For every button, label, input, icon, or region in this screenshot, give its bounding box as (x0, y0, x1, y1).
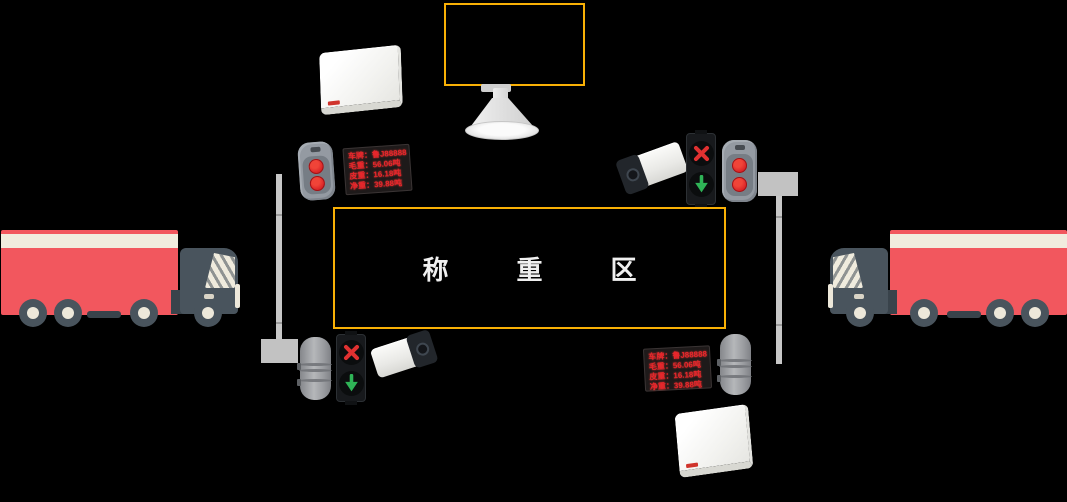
rfid-antenna-top-left (319, 45, 403, 116)
lpr-camera-bottom-left (370, 331, 436, 378)
weighbridge-diagram: 车牌：鲁J88888 毛重：56.06吨 皮重：16.18吨 净重：39.88吨 (0, 0, 1067, 502)
stop-lamp (689, 141, 714, 166)
stop-lamp (339, 340, 364, 365)
truck-wheel (194, 299, 222, 327)
mounting-pole-right (776, 196, 782, 364)
truck-right (829, 228, 1067, 328)
lpr-camera-top-right (617, 141, 688, 193)
red-lamp-icon (732, 177, 747, 192)
truck-wheel (130, 299, 158, 327)
camera-lens-icon (624, 166, 641, 183)
lamp-panel (726, 154, 753, 196)
go-lamp (689, 172, 714, 197)
pole-tick (276, 322, 282, 324)
truck-left (1, 228, 239, 328)
cylinder-band (719, 375, 752, 378)
truck-step (87, 311, 121, 318)
truck-bumper (828, 284, 833, 308)
red-lamp-icon (309, 176, 325, 192)
truck-windshield (205, 253, 235, 288)
wheel-hub (138, 307, 150, 319)
horn-rim (465, 121, 539, 140)
truck-wheel (846, 299, 874, 327)
lamp-slot (310, 147, 320, 153)
green-down-arrow-icon (692, 175, 711, 194)
go-lamp (339, 371, 364, 396)
horn-speaker (463, 84, 541, 142)
wheel-hub (202, 307, 214, 319)
infrared-cylinder-sensor-bottom-right (720, 334, 751, 395)
cylinder-band (299, 363, 332, 366)
camera-lens-icon (414, 341, 430, 357)
truck-bumper (235, 284, 240, 308)
traffic-light-bottom-left (336, 334, 366, 402)
cylinder-clip (717, 359, 721, 366)
pole-tick (776, 324, 782, 326)
truck-wheel (910, 299, 938, 327)
red-lamp-icon (732, 158, 747, 173)
lamp-panel (302, 155, 332, 195)
truck-windshield (833, 253, 863, 288)
cylinder-band (299, 369, 332, 372)
led-weight-display-top-left: 车牌：鲁J88888 毛重：56.06吨 皮重：16.18吨 净重：39.88吨 (342, 144, 412, 196)
wheel-hub (918, 307, 930, 319)
pole-tick (776, 216, 782, 218)
red-x-icon (342, 343, 361, 362)
infrared-cylinder-sensor-bottom-left (300, 337, 331, 400)
led-line-net: 净重：39.88吨 (650, 379, 707, 392)
cylinder-band (719, 365, 752, 368)
top-display-frame (444, 3, 585, 86)
truck-cargo-stripe (1, 234, 178, 248)
red-x-icon (692, 144, 711, 163)
cylinder-band (299, 379, 332, 382)
wheel-hub (854, 307, 866, 319)
traffic-light-top-right (686, 133, 716, 205)
rfid-antenna-bottom-right (675, 404, 754, 478)
led-weight-display-bottom-right: 车牌：鲁J88888 毛重：56.06吨 皮重：16.18吨 净重：39.88吨 (643, 345, 712, 391)
sign-board-left (261, 339, 298, 363)
truck-wheel (1021, 299, 1049, 327)
mounting-pole-left (276, 174, 282, 340)
dual-red-lamp-top-right (722, 140, 757, 202)
truck-wheel (986, 299, 1014, 327)
lamp-slot (735, 145, 745, 150)
cylinder-clip (297, 363, 301, 370)
red-lamp-icon (308, 158, 324, 174)
dual-red-lamp-top-left (297, 141, 336, 201)
green-down-arrow-icon (342, 374, 361, 393)
truck-step (947, 311, 981, 318)
wheel-hub (62, 307, 74, 319)
weighing-zone-label: 称重区 (354, 250, 704, 287)
truck-wheel (54, 299, 82, 327)
cylinder-clip (297, 379, 301, 386)
truck-cargo-stripe (890, 234, 1067, 248)
truck-wheel (19, 299, 47, 327)
wheel-hub (27, 307, 39, 319)
sign-board-right (758, 172, 798, 196)
wheel-hub (1029, 307, 1041, 319)
pole-tick (276, 214, 282, 216)
weighing-zone-box: 称重区 (333, 207, 726, 329)
wheel-hub (994, 307, 1006, 319)
cylinder-band (719, 359, 752, 362)
cylinder-clip (717, 375, 721, 382)
